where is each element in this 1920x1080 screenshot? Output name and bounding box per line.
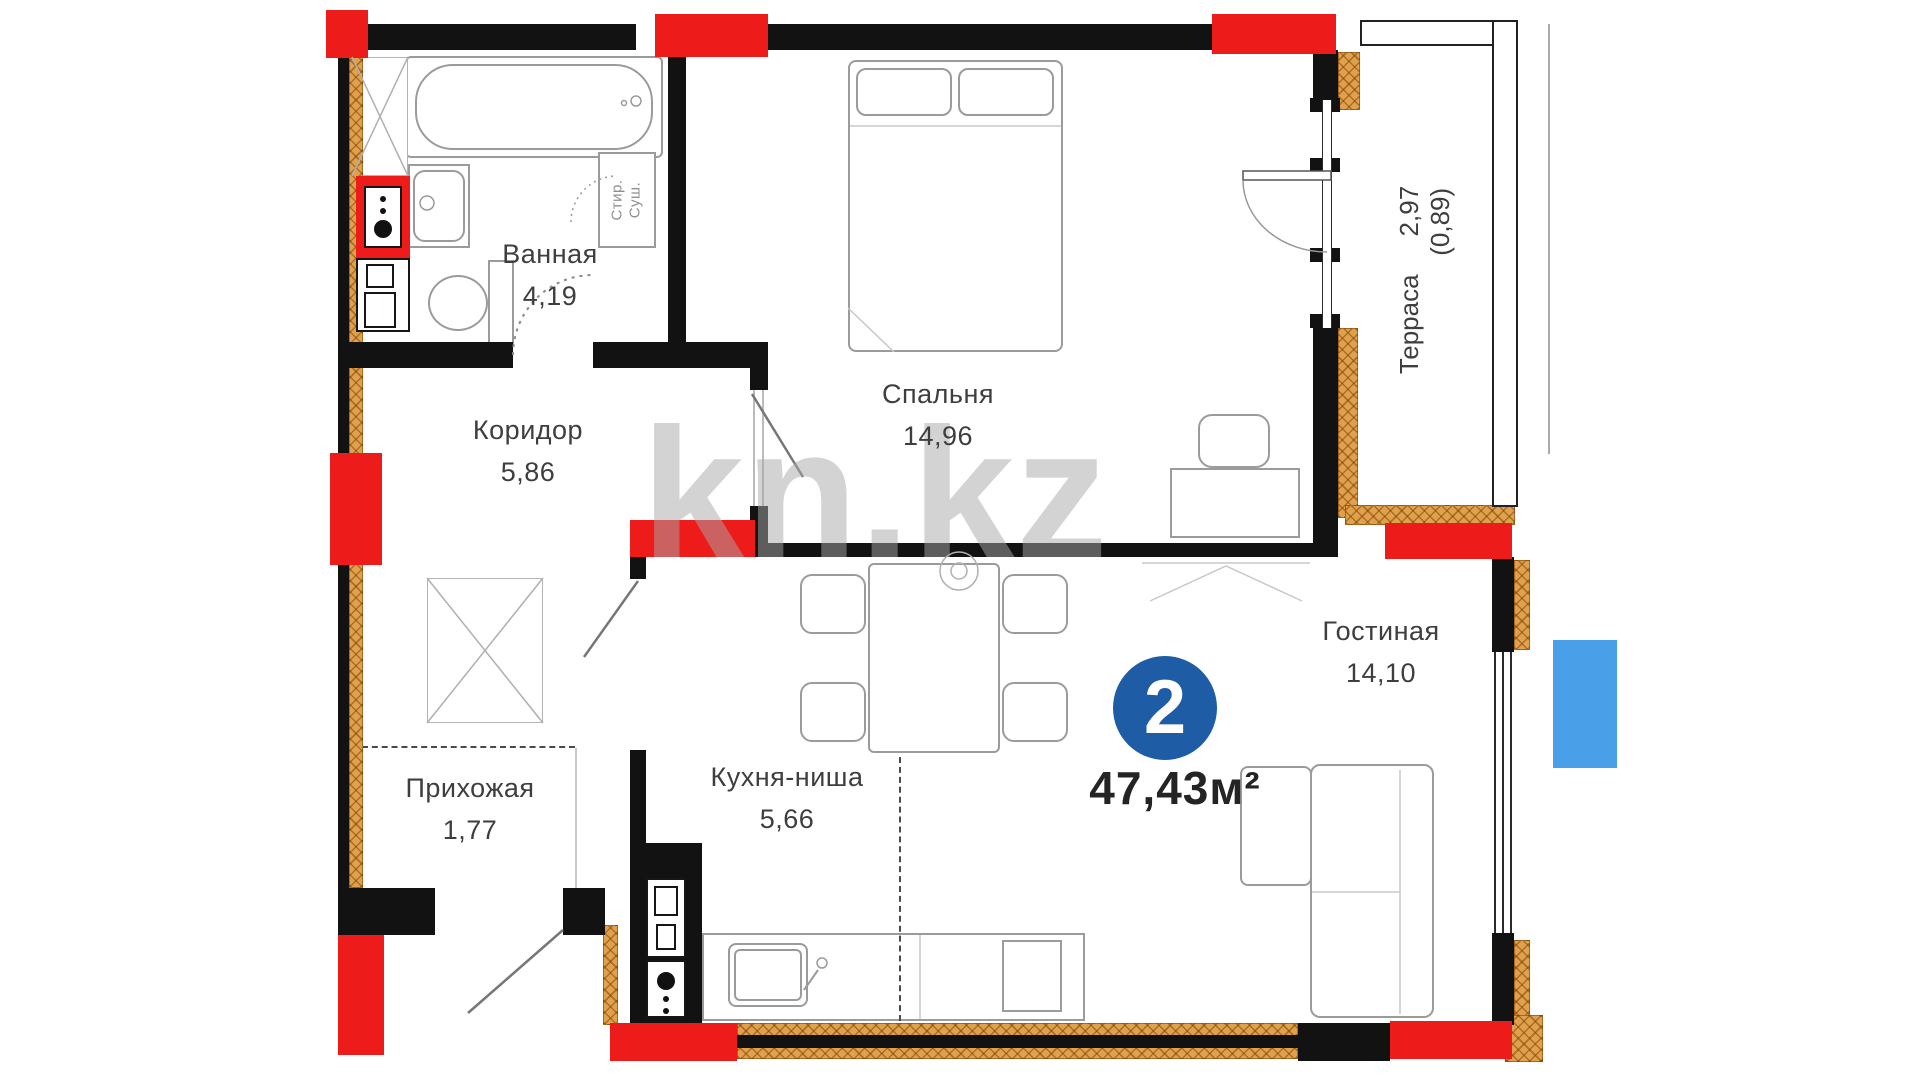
highlight-unit-marker xyxy=(1553,640,1617,768)
wall-bathroom-bottom-left xyxy=(340,342,513,368)
floor-plan: Стир. Суш. xyxy=(0,0,1920,1080)
panel-dot-small-2 xyxy=(380,208,386,214)
valve-dot-2 xyxy=(663,1008,669,1014)
room-area: 5,86 xyxy=(473,452,583,494)
chair-top-right xyxy=(1002,574,1068,634)
room-name: Прихожая xyxy=(405,768,534,810)
room-area: 2,97 xyxy=(1394,186,1425,237)
room-area: 1,77 xyxy=(405,810,534,852)
kitchen-sink-bowl xyxy=(734,949,802,1001)
wall-top-left xyxy=(366,24,636,50)
hall-zone-boundary xyxy=(362,746,575,748)
room-label-terrace: Терраса 2,97 (0,89) xyxy=(1285,115,1565,445)
chair-bottom-right xyxy=(1002,682,1068,742)
column-top-left xyxy=(326,10,368,58)
panel-dot-big xyxy=(374,220,392,238)
column-bottom-left xyxy=(338,935,384,1055)
room-label-corridor: Коридор 5,86 xyxy=(473,410,583,494)
jamb-bedroom-door-top xyxy=(750,368,768,390)
room-area: 14,10 xyxy=(1322,653,1439,695)
column-bottom-right xyxy=(1390,1021,1512,1059)
wall-bottom-core xyxy=(737,1035,1298,1048)
wardrobe xyxy=(427,578,543,723)
window-living-midline xyxy=(1502,652,1504,933)
room-label-hall: Прихожая 1,77 xyxy=(405,768,534,852)
room-name: Гостиная xyxy=(1322,611,1439,653)
insulation-terrace-top xyxy=(1338,52,1360,110)
room-area: 5,66 xyxy=(711,799,864,841)
total-area: 47,43м² xyxy=(1089,761,1260,815)
jamb-kitchen-door xyxy=(630,557,646,579)
valve-dot-1 xyxy=(663,996,669,1002)
kitchen-zone-boundary xyxy=(899,757,901,1021)
shaft-kitchen-top xyxy=(630,750,646,843)
wall-living-right-top xyxy=(1492,557,1514,652)
pillow-left xyxy=(856,68,952,116)
insulation-right-top xyxy=(1514,560,1530,650)
dryer-label: Суш. xyxy=(627,179,645,220)
wall-hall-bottom xyxy=(338,888,435,935)
room-area: 4,19 xyxy=(502,276,597,318)
room-label-kitchen: Кухня-ниша 5,66 xyxy=(711,757,864,841)
washer-label: Стир. xyxy=(609,179,627,220)
dining-table xyxy=(868,563,1000,753)
column-bottom-kitchen xyxy=(610,1023,737,1061)
bedroom-door-leaf xyxy=(752,394,803,477)
entrance-door-leaf xyxy=(468,930,563,1013)
washer-dryer-stack: Стир. Суш. xyxy=(598,152,656,248)
rooms-count: 2 xyxy=(1144,670,1186,746)
room-label-bedroom: Спальня 14,96 xyxy=(882,374,994,458)
wall-bathroom-right xyxy=(668,50,686,360)
hall-right-line xyxy=(575,748,577,888)
pillow-right xyxy=(958,68,1054,116)
shaft-square-1 xyxy=(654,886,678,916)
shaft-square-2 xyxy=(656,924,676,950)
chair-top-left xyxy=(800,574,866,634)
wall-bottom-right-block xyxy=(1298,1023,1390,1061)
column-terrace-bottom xyxy=(1385,523,1512,559)
insulation-terrace-bottom xyxy=(1345,505,1515,525)
insulation-entry-right xyxy=(603,925,618,1025)
bathtub-inner xyxy=(415,64,653,150)
toilet-bowl xyxy=(428,275,488,331)
wall-top-right xyxy=(768,24,1212,50)
room-area: 14,96 xyxy=(882,416,994,458)
chair-bottom-left xyxy=(800,682,866,742)
column-kitchen-top xyxy=(630,520,755,557)
sofa xyxy=(1310,764,1434,1018)
valve-dot-big xyxy=(657,972,675,990)
panel-dot-small-1 xyxy=(380,196,386,202)
meter-square-small xyxy=(366,264,394,288)
room-name: Ванная xyxy=(502,234,597,276)
column-top-right xyxy=(1212,14,1336,54)
bedroom-door-frame-1 xyxy=(753,390,755,508)
wash-basin-bowl xyxy=(413,170,465,242)
room-name: Коридор xyxy=(473,410,583,452)
desk-chair xyxy=(1198,414,1270,468)
jamb-entrance-right xyxy=(563,888,605,935)
rooms-count-badge: 2 xyxy=(1113,656,1217,760)
bedroom-door-frame-2 xyxy=(762,390,764,508)
room-name: Спальня xyxy=(882,374,994,416)
wall-bathroom-bottom-right xyxy=(593,342,768,368)
room-label-bathroom: Ванная 4,19 xyxy=(502,234,597,318)
column-top-mid xyxy=(655,14,768,57)
wall-living-right-bottom xyxy=(1492,933,1514,1025)
room-label-living: Гостиная 14,10 xyxy=(1322,611,1439,695)
tv-chevron xyxy=(1150,566,1302,601)
room-name: Терраса xyxy=(1394,274,1425,374)
insulation-right-bottom xyxy=(1514,940,1530,1025)
kitchen-door-leaf xyxy=(584,581,638,657)
meter-square-big xyxy=(364,292,396,328)
wall-bedroom-living xyxy=(768,543,1332,557)
room-name: Кухня-ниша xyxy=(711,757,864,799)
column-left-mid xyxy=(330,453,382,565)
stove xyxy=(1002,940,1062,1012)
desk xyxy=(1170,468,1300,538)
room-area-reduced: (0,89) xyxy=(1425,186,1456,374)
